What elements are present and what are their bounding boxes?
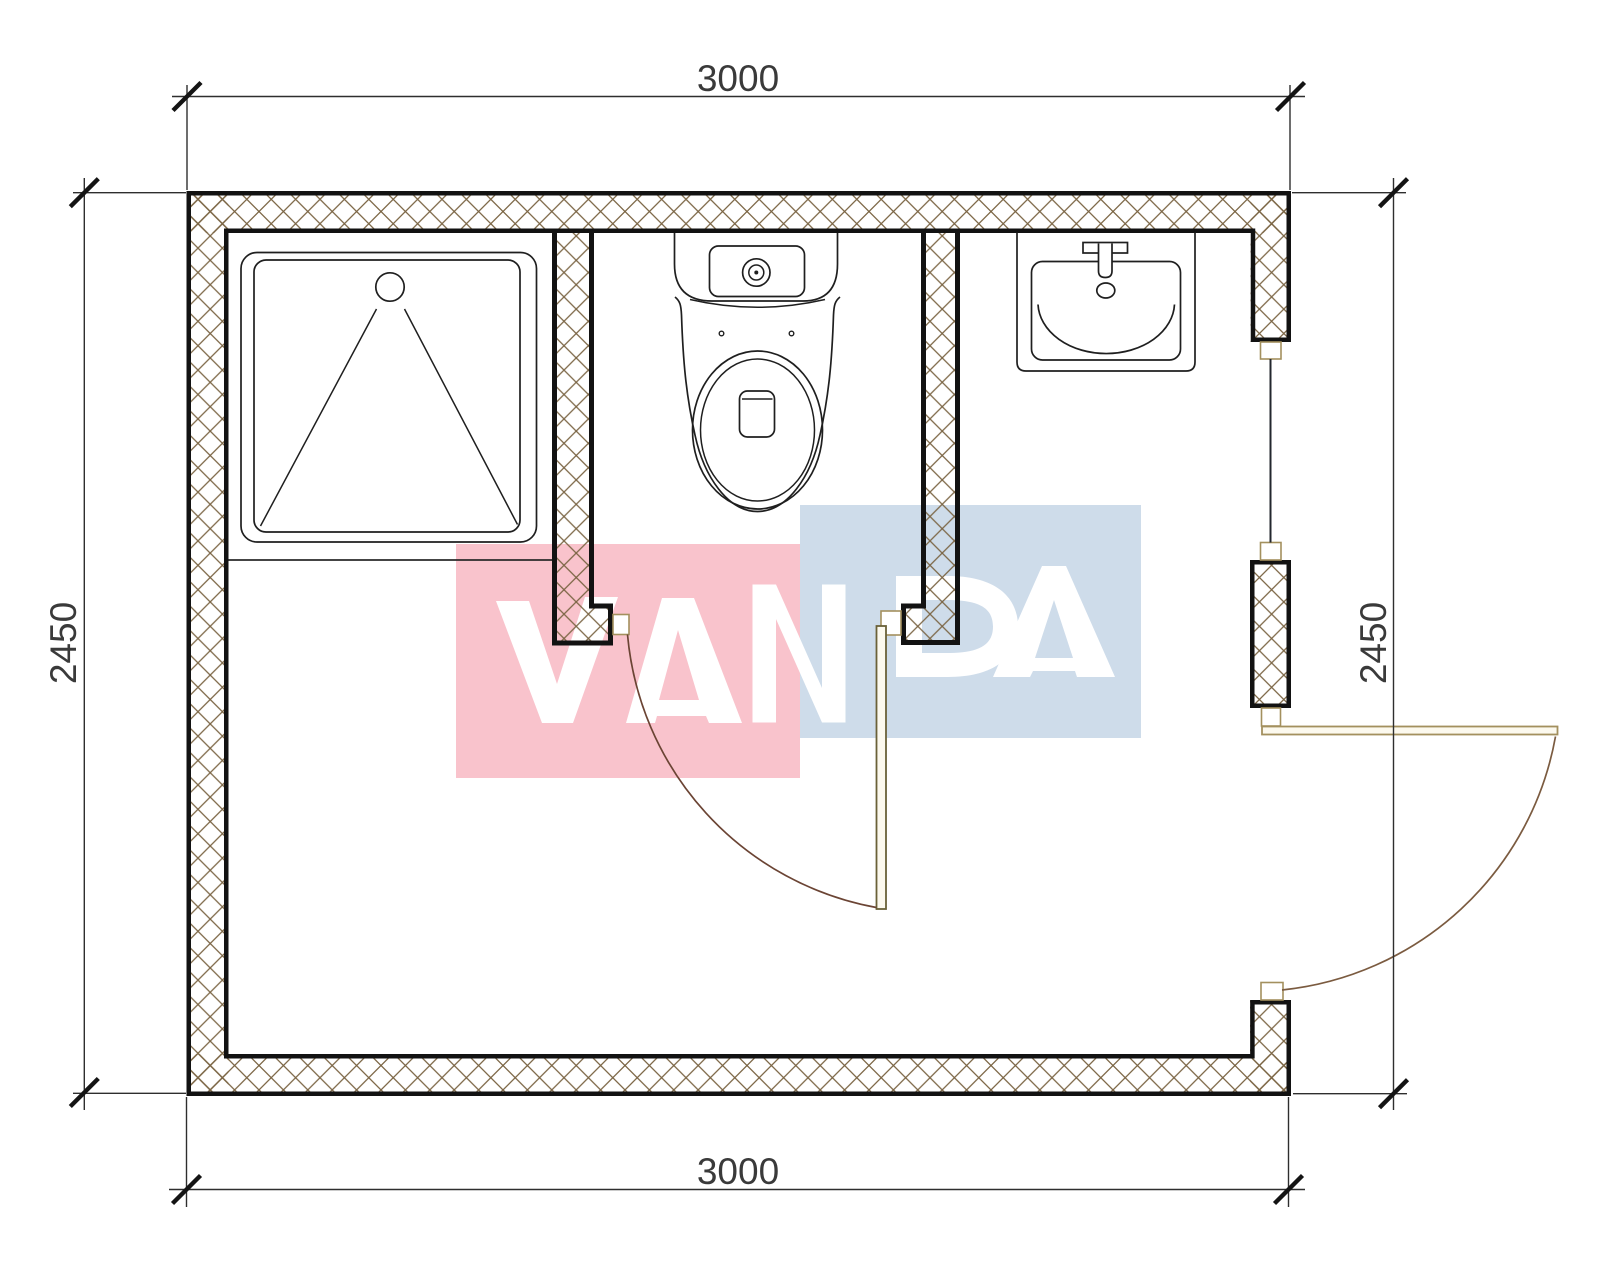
- svg-text:2450: 2450: [1353, 602, 1394, 684]
- svg-text:2450: 2450: [43, 602, 84, 684]
- svg-text:3000: 3000: [697, 1151, 779, 1192]
- svg-text:3000: 3000: [697, 58, 779, 99]
